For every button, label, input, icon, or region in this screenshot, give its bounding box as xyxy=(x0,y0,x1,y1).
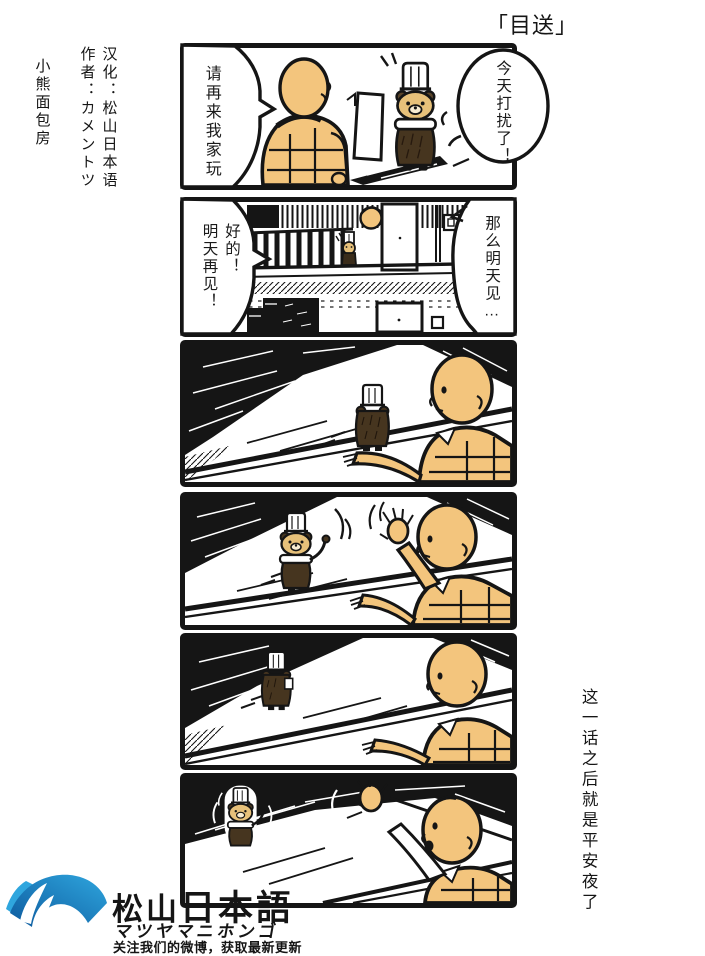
speech-bubble-p2-right-text: 那么明天见… xyxy=(481,215,501,322)
comic-panel-3 xyxy=(180,340,517,487)
speech-bubble-p2-left-text: 好的！ 明天再见！ xyxy=(197,223,242,311)
panel-5-art xyxy=(185,638,512,765)
blue-fan-logo-icon xyxy=(2,869,110,933)
comic-panel-4 xyxy=(180,492,517,630)
floor-sign xyxy=(377,303,422,332)
panel-3-art xyxy=(185,345,512,482)
credit-author: 作者：カメントツ xyxy=(78,46,95,190)
credit-group: 小熊面包房 xyxy=(33,58,50,148)
credit-translation: 汉化：松山日本语 xyxy=(100,46,117,190)
bystander-head xyxy=(361,207,382,228)
panel-4-art xyxy=(185,497,512,625)
comic-panel-5 xyxy=(180,633,517,770)
panel-1-art xyxy=(185,48,512,185)
page-title: 「目送」 xyxy=(486,8,578,40)
p2-left-col2: 明天再见！ xyxy=(197,223,219,311)
brand-tagline: 关注我们的微博，获取最新更新 xyxy=(113,937,302,956)
footer-brand: 松山 日本語 マツヤマニホンゴ 关注我们的微博，获取最新更新 xyxy=(0,860,705,950)
speech-bubble-p1-left-text: 请再来我家玩 xyxy=(200,65,221,179)
comic-panel-2: 好的！ 明天再见！ 那么明天见… xyxy=(180,197,517,337)
comic-page: 「目送」 汉化：松山日本语 作者：カメントツ 小熊面包房 这一话之后就是平安夜了 xyxy=(0,0,705,950)
p2-left-col1: 好的！ xyxy=(219,223,241,311)
comic-panel-1: 请再来我家玩 今天打扰了！ xyxy=(180,43,517,190)
speech-bubble-p1-right-text: 今天打扰了！ xyxy=(492,60,512,165)
